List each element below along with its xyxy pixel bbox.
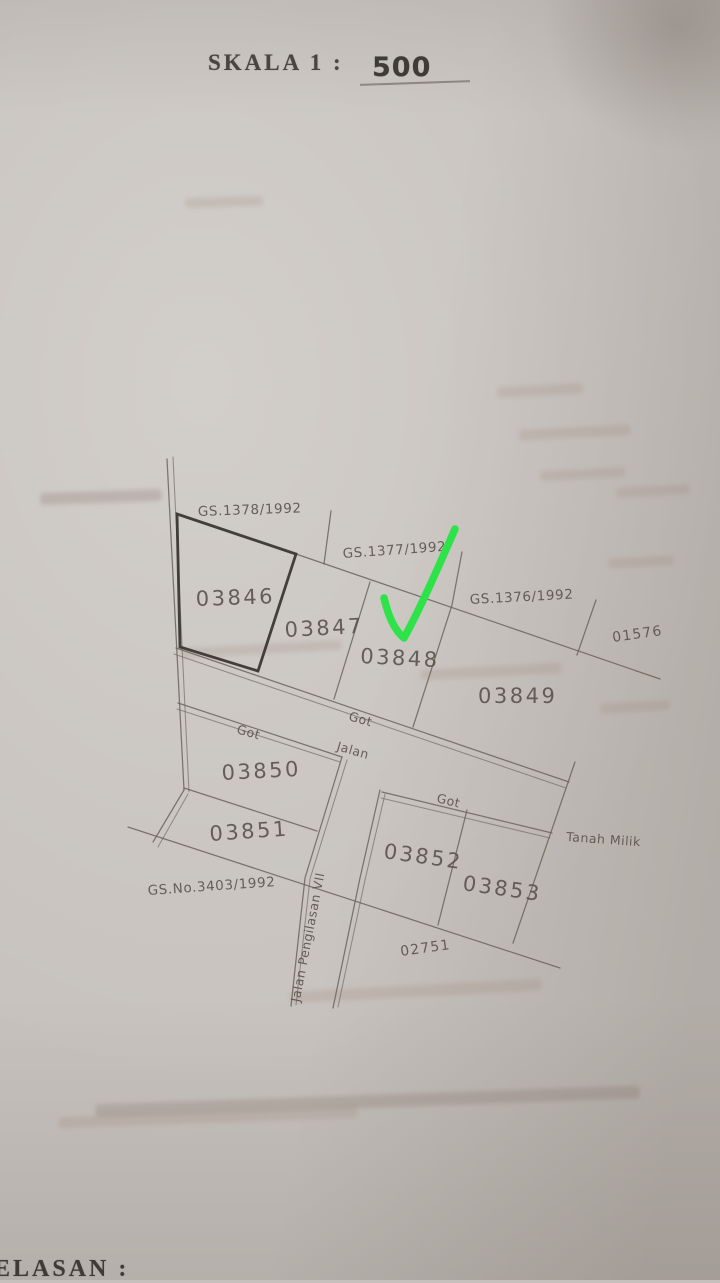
got-label-lower: Got	[235, 721, 262, 742]
tanah-milik-label: Tanah Milik	[565, 829, 642, 849]
divider-03847-03848	[334, 582, 370, 699]
parcel-label-03847: 03847	[284, 614, 364, 642]
parcel-label-01576: 01576	[611, 623, 663, 646]
gs-ref-1376-label: GS.1376/1992	[469, 587, 573, 608]
got-label-right: Got	[435, 790, 462, 810]
gs-ref-1377-label: GS.1377/1992	[342, 539, 447, 562]
parcel-label-03848: 03848	[360, 644, 440, 672]
jalan-label: Jalan	[334, 738, 371, 762]
gs-ref-3403-label: GS.No.3403/1992	[147, 874, 276, 899]
tanah-milik-boundary	[513, 762, 575, 943]
parcel-label-03851: 03851	[209, 817, 290, 846]
parcel-label-03852: 03852	[382, 839, 464, 874]
footer-partial-text: ELASAN :	[0, 1256, 129, 1283]
parcel-label-03846: 03846	[195, 584, 275, 611]
cross-street-right-edge	[333, 790, 380, 1008]
cross-street-right-edge-inner	[338, 794, 385, 1007]
boundary-tick-gs1377	[324, 511, 331, 564]
cadastral-map-svg: GS.1378/1992 GS.1377/1992 GS.1376/1992 G…	[0, 0, 720, 1280]
divider-03849-01576	[577, 600, 596, 655]
parcel-label-03853: 03853	[461, 871, 543, 906]
parcel-03851-left-edge-inner	[158, 794, 188, 847]
divider-03848-03849	[413, 552, 462, 727]
got-label-upper: Got	[347, 708, 374, 729]
scanned-cadastral-map-photo: SKALA 1 : 500	[0, 0, 720, 1280]
street-name-label: Jalan Pengilasan VII	[287, 871, 327, 1004]
parcel-label-02751: 02751	[399, 937, 451, 960]
parcel-label-03849: 03849	[478, 684, 557, 708]
parcel-03851-left-edge	[153, 790, 184, 842]
parcel-label-03850: 03850	[221, 757, 301, 785]
gs-ref-1378-label: GS.1378/1992	[198, 500, 302, 520]
